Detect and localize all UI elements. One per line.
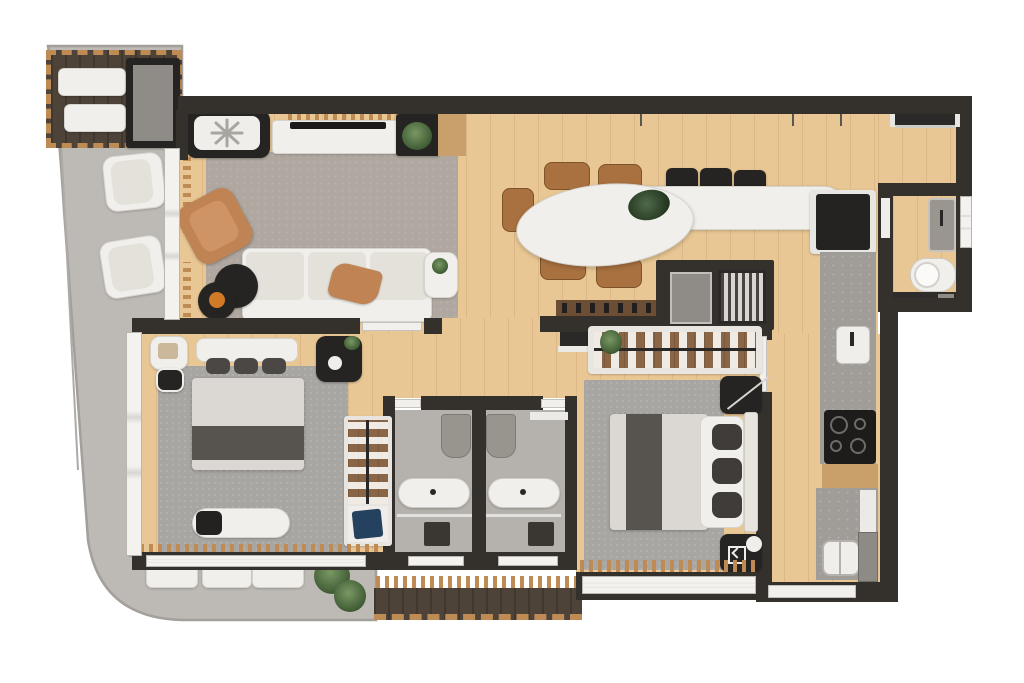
accent-pillow [206,358,230,374]
bed-blanket [192,426,304,460]
threshold-strip [580,560,758,572]
headboard [744,412,758,532]
burner [854,418,866,430]
wall-tick [640,114,642,126]
terrace-armchair-cushion [110,158,154,206]
bed-blanket [626,414,662,530]
wall-powder-bottom [880,298,972,312]
closet-rail [366,420,369,504]
wall-tick [792,114,794,126]
accent-pillow [712,424,742,450]
faucet [940,210,943,226]
laundry-door [768,585,856,598]
starburst-decor-icon [208,118,246,148]
shower-glass [397,514,472,517]
sun-lounger [64,104,126,132]
potted-plant [334,580,366,612]
table-lamp [746,536,762,552]
accent-pillow [262,358,286,374]
nightstand-lower [156,368,184,392]
bottom-deck [374,588,582,620]
wood-sideboard [438,114,466,156]
plant-sprig [344,336,360,350]
faucet [520,489,526,495]
potted-plant [402,122,432,150]
wall-stub [424,318,442,334]
bathroom-window [498,556,558,566]
counter-panel [670,272,712,324]
entry-door [895,114,955,125]
bench-cushion [196,511,222,535]
burner [830,416,848,434]
shower-drain [424,522,450,546]
living-room-window [164,148,180,320]
barbecue-grill [718,270,766,324]
bathroom-window [408,556,464,566]
tray [209,292,225,308]
burner [850,438,866,454]
potted-plant [600,330,622,354]
curtain [183,262,191,317]
toilet-seat [914,262,940,288]
powder-room-window [960,196,972,248]
burner [830,440,842,452]
toilet [486,414,516,458]
tv [290,122,386,129]
folded-clothes [352,509,384,540]
table-lamp [328,356,342,370]
wall-living-bedroom [132,318,360,334]
fridge [816,194,870,250]
faucet [430,489,436,495]
wall-bath-center [472,396,486,570]
vase-flowers [432,258,448,274]
shower-glass [486,514,561,517]
sink-divider [839,542,841,574]
laundry-sink [822,540,860,576]
wine-bottles [562,303,656,313]
terrace-armchair-cushion [107,242,156,293]
shower-drain [528,522,554,546]
planter-fill [133,65,173,141]
bedroom-left-door [362,322,422,331]
bedroom-left-side-window [126,332,142,556]
sun-lounger [58,68,126,96]
powder-door [881,198,890,238]
wall-bath-right [565,396,577,570]
deck-threshold [376,576,582,588]
wall-powder-top [893,183,956,196]
bathroom-left-door [393,399,421,408]
accent-pillow [712,458,742,484]
counter-ledge [860,490,876,538]
wall-right-lower [880,312,898,602]
entry-door-threshold [895,125,955,128]
door-jamb [955,114,960,127]
wall-top [178,96,972,114]
accent-pillow [234,358,258,374]
wall-tick [840,114,842,126]
floor-plan [0,0,1024,683]
wood-counter-section [822,464,878,488]
bedroom-right-window [582,576,756,594]
bath-shelf [530,412,568,420]
toilet [441,414,471,458]
accent-pillow [712,492,742,518]
washing-machine [858,532,878,582]
nightstand-decor [158,343,178,359]
bedroom-left-window [146,555,366,567]
faucet [850,332,854,346]
